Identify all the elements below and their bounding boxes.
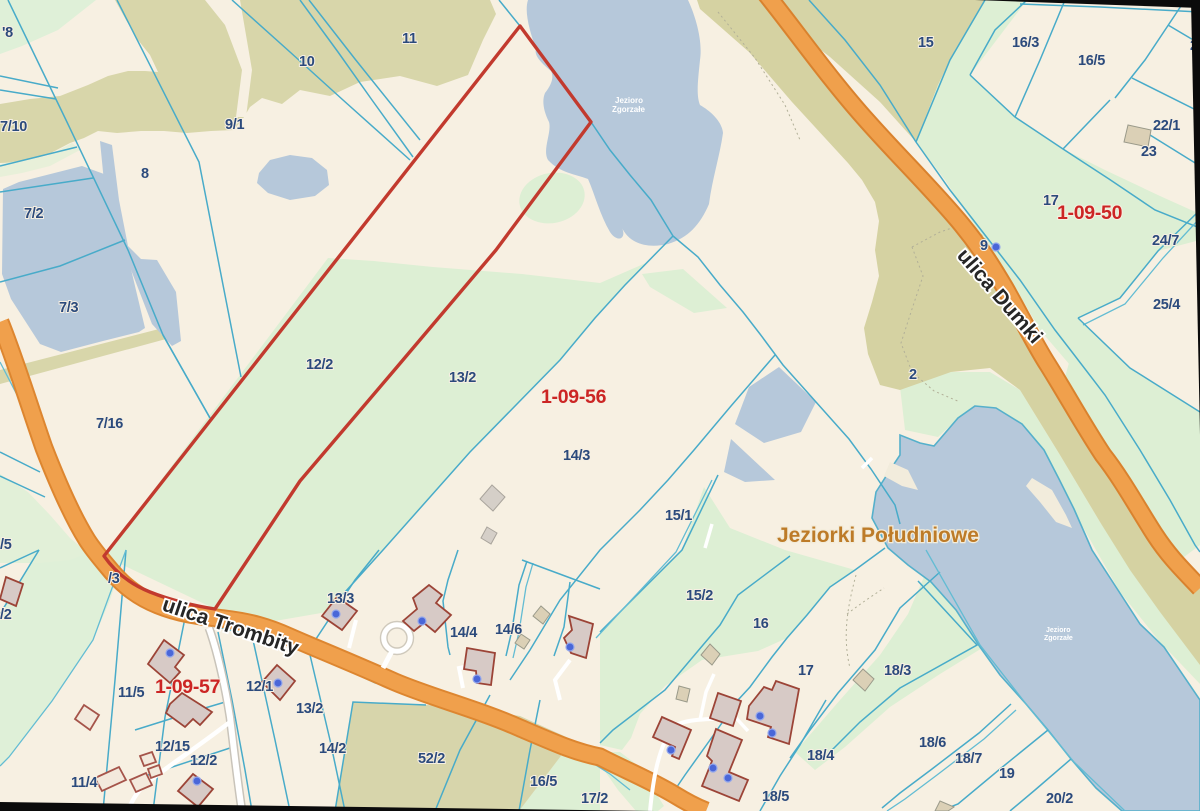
svg-text:11/4: 11/4 xyxy=(71,775,97,791)
svg-text:9/1: 9/1 xyxy=(225,117,244,133)
svg-text:18/7: 18/7 xyxy=(955,751,982,767)
svg-text:1-09-57: 1-09-57 xyxy=(155,676,220,698)
svg-text:13/3: 13/3 xyxy=(327,591,354,607)
svg-text:13/2: 13/2 xyxy=(296,701,323,717)
svg-text:22/1: 22/1 xyxy=(1153,118,1180,134)
svg-text:12/15: 12/15 xyxy=(155,739,190,755)
svg-text:16/5: 16/5 xyxy=(1078,53,1105,69)
svg-text:Jeziorki Południowe: Jeziorki Południowe xyxy=(777,524,979,547)
svg-text:25/4: 25/4 xyxy=(1153,297,1180,313)
svg-text:Jezioro: Jezioro xyxy=(1046,627,1071,634)
svg-text:'8: '8 xyxy=(2,25,13,41)
svg-text:/3: /3 xyxy=(108,571,120,587)
svg-text:10: 10 xyxy=(299,54,315,70)
svg-text:12/1: 12/1 xyxy=(246,679,273,695)
svg-text:16: 16 xyxy=(753,616,769,632)
svg-text:23: 23 xyxy=(1141,144,1157,160)
svg-text:16/3: 16/3 xyxy=(1012,35,1039,51)
svg-text:20/2: 20/2 xyxy=(1046,791,1073,807)
svg-text:12/2: 12/2 xyxy=(306,357,333,373)
svg-text:14/4: 14/4 xyxy=(450,625,477,641)
svg-text:/2: /2 xyxy=(0,607,12,623)
svg-text:24/7: 24/7 xyxy=(1152,233,1179,249)
svg-text:52/2: 52/2 xyxy=(418,751,445,767)
svg-text:7/2: 7/2 xyxy=(24,206,43,222)
svg-text:Zgorzałe: Zgorzałe xyxy=(612,105,645,114)
svg-text:/5: /5 xyxy=(0,537,12,553)
svg-text:18/6: 18/6 xyxy=(919,735,946,751)
svg-text:13/2: 13/2 xyxy=(449,370,476,386)
svg-text:18/3: 18/3 xyxy=(884,663,911,679)
svg-text:18/5: 18/5 xyxy=(762,789,789,805)
svg-text:17/2: 17/2 xyxy=(581,791,608,807)
svg-text:12/2: 12/2 xyxy=(190,753,217,769)
svg-text:11: 11 xyxy=(402,31,417,47)
svg-text:7/10: 7/10 xyxy=(0,119,27,135)
svg-text:15/1: 15/1 xyxy=(665,508,692,524)
svg-text:15: 15 xyxy=(918,35,934,51)
svg-text:14/6: 14/6 xyxy=(495,622,522,638)
svg-text:7/16: 7/16 xyxy=(96,416,123,432)
svg-text:11/5: 11/5 xyxy=(118,685,144,701)
svg-text:17: 17 xyxy=(798,663,814,679)
svg-text:8: 8 xyxy=(141,166,149,182)
svg-text:16/5: 16/5 xyxy=(530,774,557,790)
svg-text:18/4: 18/4 xyxy=(807,748,834,764)
svg-text:15/2: 15/2 xyxy=(686,588,713,604)
svg-text:14/3: 14/3 xyxy=(563,448,590,464)
svg-text:1-09-56: 1-09-56 xyxy=(541,386,607,408)
svg-text:Jezioro: Jezioro xyxy=(615,96,643,105)
svg-text:Zgorzałe: Zgorzałe xyxy=(1044,635,1073,642)
svg-text:19: 19 xyxy=(999,766,1015,782)
svg-text:1-09-50: 1-09-50 xyxy=(1057,202,1123,224)
svg-text:7/3: 7/3 xyxy=(59,300,78,316)
svg-text:9: 9 xyxy=(980,238,988,254)
svg-text:14/2: 14/2 xyxy=(319,741,346,757)
svg-text:2: 2 xyxy=(909,367,917,383)
